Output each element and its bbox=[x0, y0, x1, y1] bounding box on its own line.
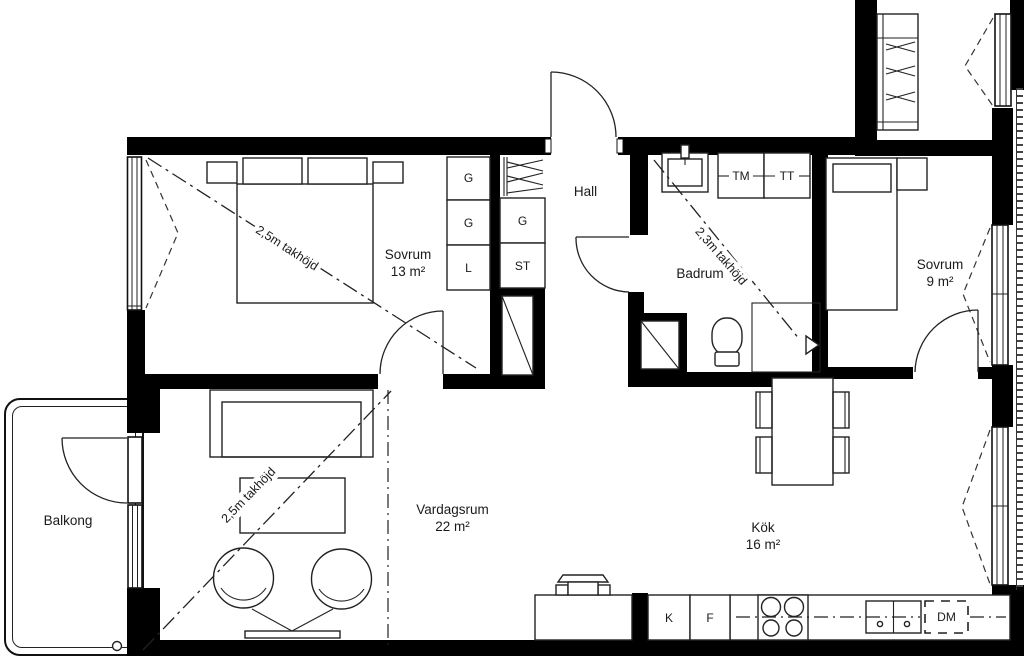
room-name: Sovrum bbox=[900, 256, 980, 273]
appliance-label-tt: TT bbox=[764, 170, 810, 182]
survey-point bbox=[113, 642, 122, 651]
shaft-badrum bbox=[641, 321, 679, 369]
room-area: 16 m² bbox=[723, 536, 803, 553]
appliance-label-dm: DM bbox=[925, 611, 968, 623]
badrum-door bbox=[576, 237, 629, 292]
closet-label-g2: G bbox=[447, 217, 490, 229]
hanger-rail-icon bbox=[504, 157, 543, 196]
balcony-door bbox=[62, 438, 127, 503]
appliance-label-tm: TM bbox=[718, 170, 764, 182]
plan-line-layer bbox=[0, 0, 1024, 656]
room-name: Hall bbox=[563, 183, 608, 200]
sink bbox=[662, 145, 708, 192]
room-name: Vardagsrum bbox=[405, 501, 500, 518]
room-label-hall: Hall bbox=[563, 183, 608, 200]
sideboard bbox=[535, 575, 632, 640]
ceiling-arrow bbox=[806, 336, 819, 354]
room-label-vardagsrum: Vardagsrum 22 m² bbox=[405, 501, 500, 535]
room-label-kok: Kök 16 m² bbox=[723, 519, 803, 553]
closet-label-l: L bbox=[447, 262, 490, 274]
tv-stand bbox=[245, 609, 340, 638]
window-upper-right-unit bbox=[995, 14, 1011, 106]
closet-label-st: ST bbox=[500, 260, 545, 272]
hall-closets bbox=[500, 198, 545, 288]
window-bedroom9 bbox=[992, 225, 1008, 365]
room-name: Sovrum bbox=[368, 246, 448, 263]
floor-plan: Sovrum 13 m² Hall Badrum Sovrum 9 m² Var… bbox=[0, 0, 1024, 656]
room-area: 9 m² bbox=[900, 273, 980, 290]
wardrobe-icon bbox=[877, 14, 918, 130]
armchair-right bbox=[312, 549, 372, 609]
window-swing-bedroom13 bbox=[146, 160, 178, 308]
entry-door bbox=[545, 72, 623, 153]
room-label-sovrum9: Sovrum 9 m² bbox=[900, 256, 980, 290]
bedroom9-door bbox=[915, 310, 978, 372]
appliance-label-f: F bbox=[690, 612, 730, 624]
bedroom13-door bbox=[380, 311, 443, 374]
double-bed bbox=[207, 158, 403, 303]
armchair-left bbox=[214, 548, 274, 608]
window-swing-kitchen bbox=[962, 430, 990, 584]
window-kitchen bbox=[992, 427, 1008, 585]
window-balcony bbox=[128, 437, 142, 588]
window-swing-bedroom9 bbox=[963, 228, 990, 362]
dining-table bbox=[756, 378, 849, 485]
room-label-sovrum13: Sovrum 13 m² bbox=[368, 246, 448, 280]
closet-label-g1: G bbox=[447, 172, 490, 184]
room-area: 22 m² bbox=[405, 518, 500, 535]
room-name: Kök bbox=[723, 519, 803, 536]
window-swing-upper-right bbox=[965, 18, 993, 106]
window-bedroom13 bbox=[128, 157, 142, 310]
toilet bbox=[712, 318, 742, 366]
sofa bbox=[210, 390, 373, 457]
shaft-hall bbox=[502, 296, 533, 375]
room-label-balkong: Balkong bbox=[30, 512, 106, 529]
room-name: Balkong bbox=[30, 512, 106, 529]
closet-label-g3: G bbox=[500, 215, 545, 227]
appliance-label-k: K bbox=[648, 612, 690, 624]
room-area: 13 m² bbox=[368, 263, 448, 280]
shower-area bbox=[752, 303, 820, 372]
